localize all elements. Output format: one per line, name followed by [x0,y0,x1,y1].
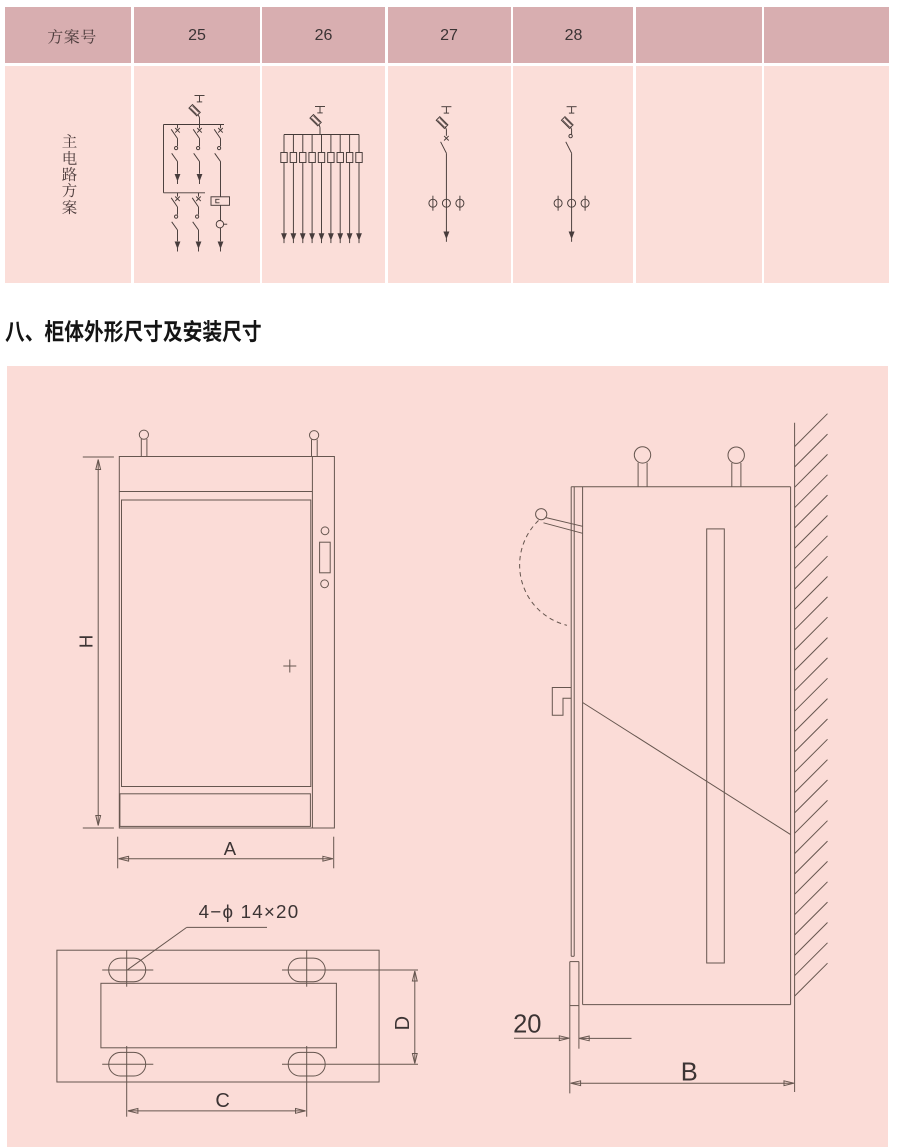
svg-text:20: 20 [513,1010,541,1038]
svg-text:D: D [392,1016,414,1030]
svg-text:H: H [75,635,96,648]
svg-text:B: B [681,1059,698,1087]
svg-text:C: C [215,1090,229,1112]
svg-text:A: A [224,838,237,859]
svg-text:4−ϕ 14×20: 4−ϕ 14×20 [199,901,300,922]
